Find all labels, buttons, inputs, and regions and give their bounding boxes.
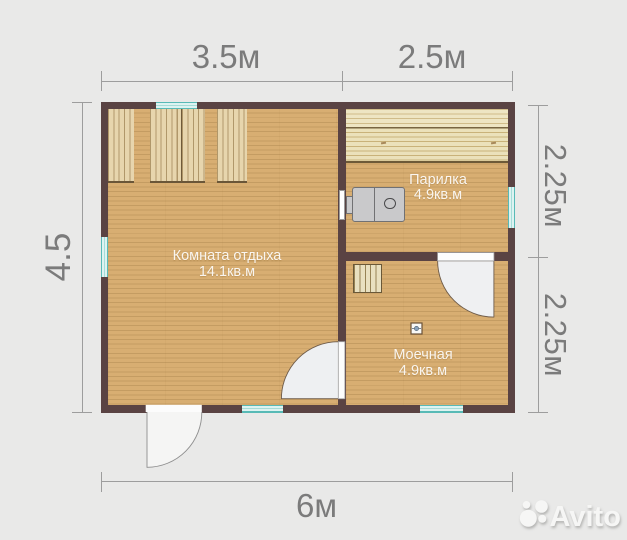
svg-text:Avito: Avito (550, 501, 621, 533)
